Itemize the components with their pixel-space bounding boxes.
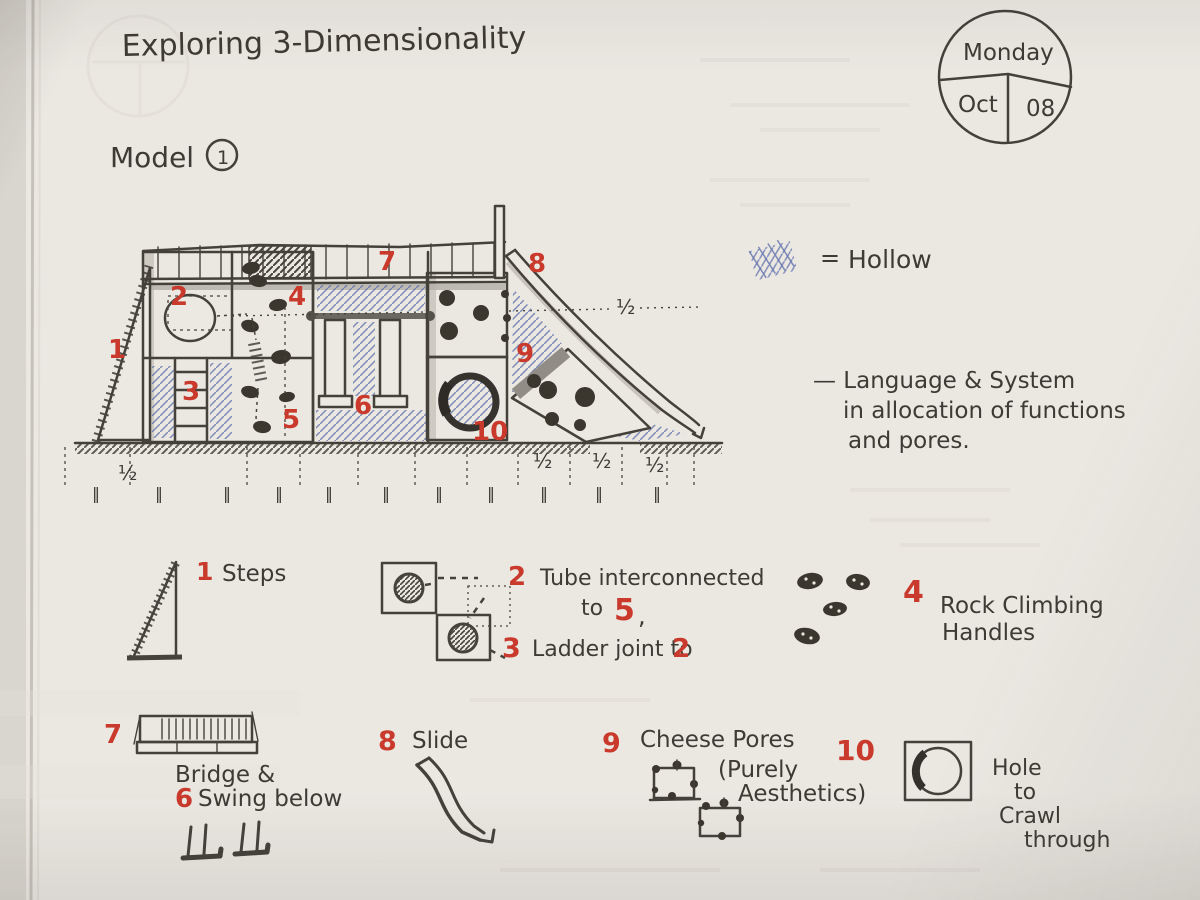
swing-strap-2 [380,320,400,398]
marker-10: 10 [472,417,508,447]
legend-pores-line2: (Purely [718,757,798,783]
tube-hole-2 [449,624,477,652]
legend-pores-number: 9 [602,728,621,759]
marker-7: 7 [378,247,396,277]
legend-hole-line1: Hole [992,756,1042,781]
legend-tube-line1: Tube interconnected [539,566,765,591]
hollow-hatch-top [317,285,425,311]
legend-pores-line1: Cheese Pores [640,727,795,753]
legend-tube-to: to [581,596,603,621]
legend-tube-number: 2 [508,562,526,592]
dim-tick-label: ‖ [223,484,231,503]
marker-5: 5 [282,405,300,435]
date-day: Monday [963,40,1054,66]
legend-slide-number: 8 [378,726,397,757]
legend-ladder-line: Ladder joint to [532,637,693,662]
legend-tube-comma: , [638,602,646,630]
legend-swing-number: 6 [175,784,193,814]
legend-ladder-number: 3 [502,633,521,664]
dim-tick-label: ‖ [155,484,163,503]
hollow-hatch-mid [353,322,375,396]
legend-hole-line4: through [1024,828,1110,853]
model-number: 1 [217,147,229,169]
marker-2: 2 [170,282,188,312]
note-line-3: and pores. [848,428,970,454]
dim-tick-label: ‖ [487,484,495,503]
hollow-label: Hollow [848,245,932,274]
dim-tick-label: ‖ [275,484,283,503]
legend-hole-number: 10 [836,734,875,767]
legend-steps-number: 1 [196,557,213,586]
marker-1: 1 [108,335,126,365]
dim-half-label: ½ [645,453,664,477]
dim-tick-label: ‖ [92,484,100,503]
swing-strap-1 [325,320,345,398]
date-month: Oct [958,92,998,118]
note-line-2: in allocation of functions [843,398,1126,424]
sketch-canvas: Exploring 3-Dimensionality Monday Oct 08… [0,0,1200,900]
notebook-page: Exploring 3-Dimensionality Monday Oct 08… [0,0,1200,900]
hollow-hatch-2 [210,363,232,439]
legend-slide-label: Slide [412,728,468,754]
legend-hole-line2: to [1014,780,1036,805]
legend-ladder-target: 2 [672,634,690,664]
note-line-1: — Language & System [813,368,1075,394]
model-label: Model [110,141,194,174]
hollow-equals: = [820,244,840,272]
dim-half-label: ½ [592,449,611,473]
dim-half-label: ½ [533,449,552,473]
legend-steps-base [127,657,182,658]
marker-3: 3 [182,377,200,407]
marker-6: 6 [354,391,372,421]
crawl-hole-rim [443,384,449,414]
datum-half-label: ½ [616,295,635,319]
ground-hatch-left [75,444,590,454]
legend-pores-line3: Aesthetics) [738,781,866,807]
legend-steps-label: Steps [222,561,286,587]
legend-bridge-number: 7 [104,720,122,750]
legend-handles-line1: Rock Climbing [940,593,1104,619]
tube-hole-1 [395,574,423,602]
marker-8: 8 [528,249,546,279]
slide-pole [495,206,504,278]
dim-tick-label: ‖ [540,484,548,503]
marker-9: 9 [516,339,534,369]
dim-tick-label: ‖ [325,484,333,503]
marker-4: 4 [288,282,306,312]
dim-tick-label: ‖ [435,484,443,503]
dim-tick-label: ‖ [382,484,390,503]
legend-handles-line2: Handles [942,620,1035,646]
date-number: 08 [1026,96,1055,122]
swing-seat-2 [374,396,407,407]
legend-handles-number: 4 [903,575,924,610]
hollow-hatch-1 [152,366,174,438]
legend-tube-target: 5 [614,593,635,628]
dim-half-label: ½ [118,461,137,485]
dim-tick-label: ‖ [595,484,603,503]
dim-tick-label: ‖ [653,484,661,503]
legend-hole-line3: Crawl [999,804,1061,829]
swing-bar-cap-left [306,311,316,321]
legend-bridge-line2: Swing below [198,786,342,812]
swing-seat-1 [319,396,352,407]
